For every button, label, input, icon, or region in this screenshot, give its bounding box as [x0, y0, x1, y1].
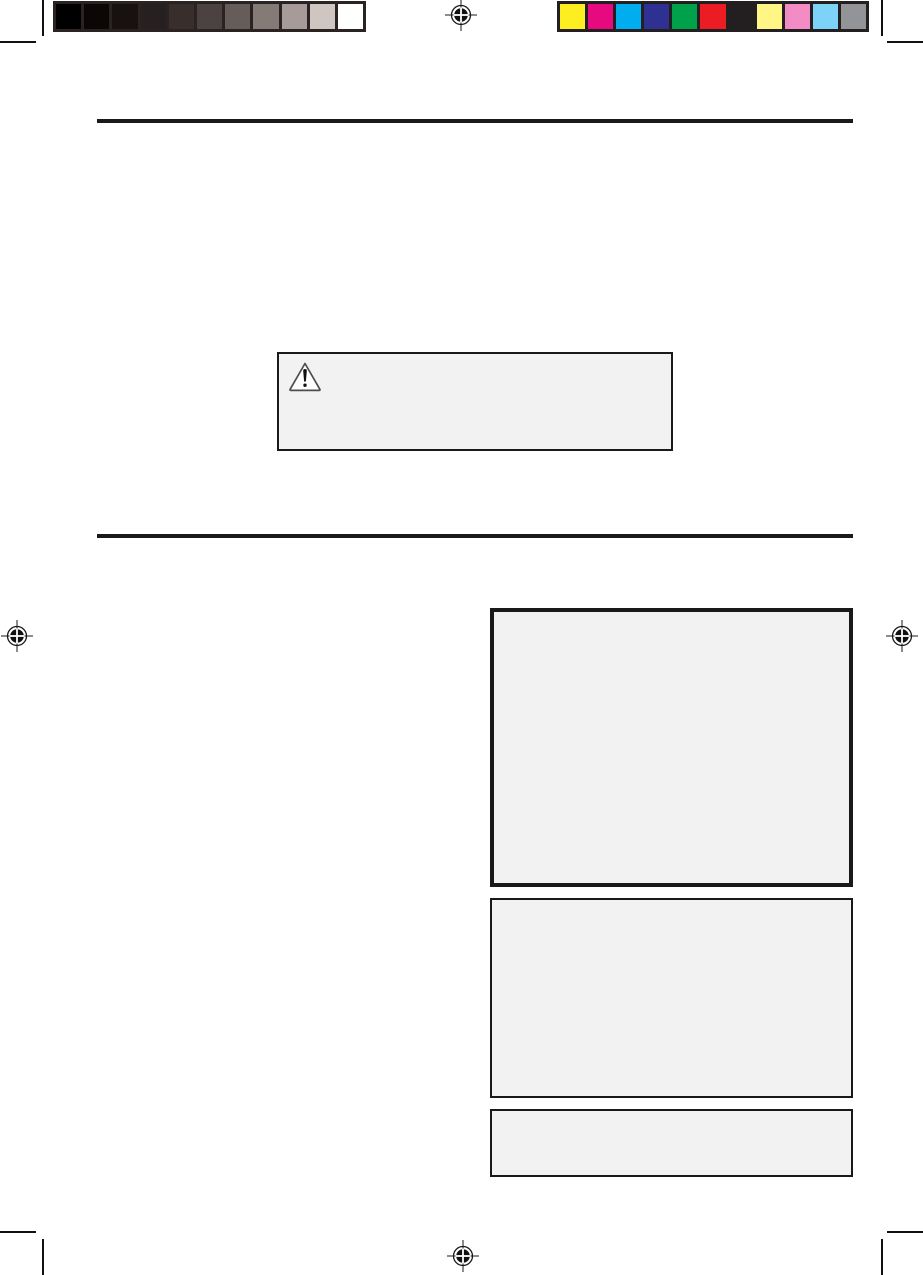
- calibration-swatch: [282, 4, 307, 29]
- calibration-swatch: [197, 4, 222, 29]
- calibration-swatch: [141, 4, 166, 29]
- grayscale-calibration-bar: [53, 1, 366, 32]
- content-panel-large: [490, 608, 853, 887]
- calibration-swatch: [338, 4, 363, 29]
- calibration-swatch: [225, 4, 250, 29]
- calibration-swatch: [672, 4, 697, 29]
- calibration-swatch: [56, 4, 81, 29]
- calibration-swatch: [729, 4, 754, 29]
- print-proof-page: [0, 0, 923, 1275]
- registration-mark-icon: [1, 620, 33, 652]
- calibration-swatch: [560, 4, 585, 29]
- calibration-swatch: [757, 4, 782, 29]
- calibration-swatch: [169, 4, 194, 29]
- calibration-swatch: [644, 4, 669, 29]
- crop-mark-top-left-horizontal: [0, 41, 36, 43]
- crop-mark-top-right-horizontal: [887, 41, 923, 43]
- content-panel-medium: [490, 898, 853, 1098]
- section-divider-top: [97, 119, 853, 123]
- warning-triangle-icon: [288, 361, 322, 393]
- registration-mark-icon: [886, 620, 918, 652]
- crop-mark-bottom-left-vertical: [42, 1239, 44, 1275]
- content-panel-small: [490, 1109, 853, 1177]
- calibration-swatch: [112, 4, 137, 29]
- crop-mark-top-left-vertical: [42, 0, 44, 36]
- crop-mark-bottom-right-horizontal: [887, 1231, 923, 1233]
- calibration-swatch: [785, 4, 810, 29]
- calibration-swatch: [841, 4, 866, 29]
- registration-mark-icon: [447, 1240, 479, 1272]
- section-divider-bottom: [97, 534, 853, 538]
- warning-box: [277, 352, 673, 451]
- calibration-swatch: [84, 4, 109, 29]
- calibration-swatch: [310, 4, 335, 29]
- calibration-swatch: [616, 4, 641, 29]
- calibration-swatch: [253, 4, 278, 29]
- crop-mark-bottom-right-vertical: [881, 1239, 883, 1275]
- calibration-swatch: [813, 4, 838, 29]
- registration-mark-icon: [445, 0, 477, 31]
- crop-mark-top-right-vertical: [881, 0, 883, 36]
- color-calibration-bar: [557, 1, 869, 32]
- calibration-swatch: [700, 4, 725, 29]
- crop-mark-bottom-left-horizontal: [0, 1231, 36, 1233]
- calibration-swatch: [588, 4, 613, 29]
